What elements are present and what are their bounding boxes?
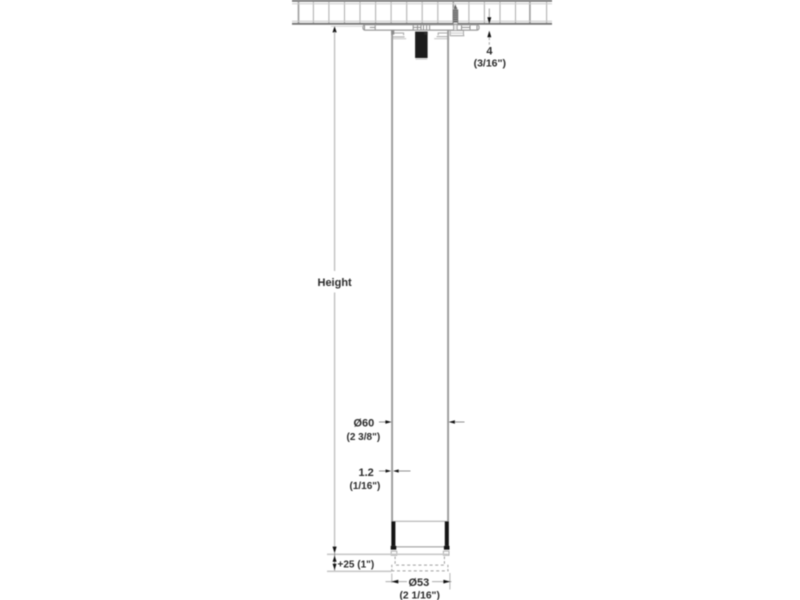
svg-text:Ø53: Ø53	[409, 577, 430, 589]
svg-text:(2 3/8"): (2 3/8")	[347, 432, 381, 443]
svg-text:+25 (1"): +25 (1")	[338, 560, 375, 571]
svg-text:Height: Height	[318, 277, 353, 289]
svg-text:(1/16"): (1/16")	[350, 481, 381, 492]
svg-text:1.2: 1.2	[359, 467, 374, 479]
svg-text:4: 4	[486, 46, 493, 58]
svg-text:(3/16"): (3/16")	[474, 58, 506, 70]
svg-text:Ø60: Ø60	[354, 418, 375, 430]
svg-text:(2 1/16"): (2 1/16")	[400, 590, 440, 600]
